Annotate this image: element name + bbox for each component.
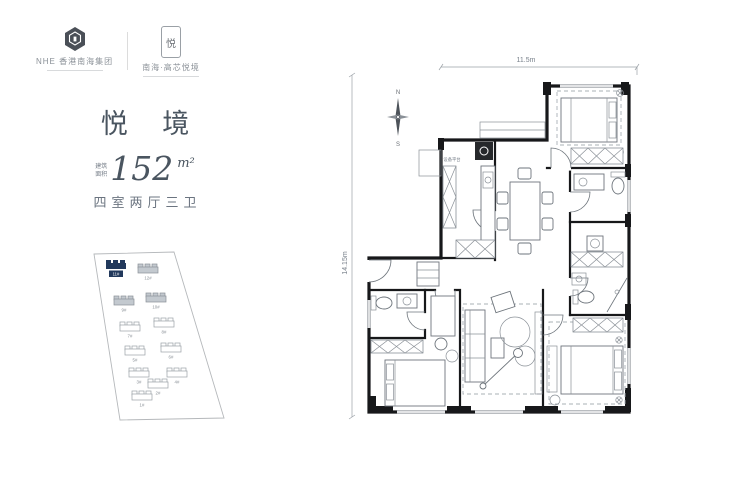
kitchen-lower-cabinet bbox=[456, 240, 495, 258]
washer-icon bbox=[587, 236, 603, 251]
project-logo: 悦 南海·高芯悦境 bbox=[142, 26, 200, 80]
vanity-icon bbox=[574, 174, 604, 190]
window-bottom-left bbox=[397, 409, 445, 414]
shower-door bbox=[607, 278, 627, 312]
area-unit: m² bbox=[177, 156, 195, 183]
area-row: 建筑 面积 152 m² bbox=[80, 155, 210, 183]
sink-icon bbox=[572, 273, 586, 285]
stove-icon bbox=[475, 142, 493, 160]
siteplan-building: 4# bbox=[167, 368, 187, 385]
siteplan-building: 6# bbox=[161, 343, 181, 360]
building-label: 8# bbox=[162, 330, 167, 335]
toilet-icon bbox=[376, 297, 392, 309]
svg-text:S: S bbox=[396, 142, 400, 148]
unit-title: 悦 境 bbox=[80, 102, 210, 141]
window-right-bedroom bbox=[626, 348, 631, 384]
project-tagline-rule bbox=[143, 76, 199, 80]
coffee-table-icon bbox=[491, 338, 504, 358]
sofa-icon bbox=[465, 310, 485, 382]
armchair-icon bbox=[491, 291, 515, 312]
building-label: 1# bbox=[140, 403, 145, 408]
window-bottom-right bbox=[561, 409, 603, 414]
floorplan-page: NHE 香港南海集团 悦 南海·高芯悦境 悦 境 建筑 面积 152 m² 四室… bbox=[0, 0, 740, 484]
siteplan-building: 3# bbox=[129, 368, 149, 385]
window-bottom-living bbox=[475, 409, 523, 414]
developer-tagline-rule bbox=[47, 70, 103, 74]
plant-icon bbox=[446, 350, 458, 362]
building-label: 4# bbox=[175, 380, 180, 385]
window-top bbox=[560, 83, 613, 88]
siteplan-building: 7# bbox=[120, 322, 140, 339]
developer-name: NHE 香港南海集团 bbox=[36, 56, 113, 67]
svg-text:N: N bbox=[396, 90, 400, 96]
compass-icon: N S bbox=[387, 90, 409, 148]
building-label: 6# bbox=[169, 355, 174, 360]
bed-icon bbox=[561, 98, 617, 142]
bedroom-southeast bbox=[547, 318, 625, 405]
ceiling-light-icon bbox=[616, 337, 622, 343]
building-label: 12# bbox=[144, 276, 152, 281]
toilet-icon bbox=[578, 291, 594, 303]
dim-width-label: 11.5m bbox=[517, 57, 536, 64]
ceiling-light-icon bbox=[616, 397, 622, 403]
building-label: 10# bbox=[152, 305, 160, 310]
seal-character: 悦 bbox=[166, 35, 176, 50]
siteplan-building: 9# bbox=[114, 296, 134, 313]
project-name: 南海·高芯悦境 bbox=[142, 62, 200, 73]
chair-icon bbox=[435, 338, 447, 350]
brand-divider bbox=[127, 32, 128, 70]
unit-info: 悦 境 建筑 面积 152 m² 四室两厅三卫 bbox=[80, 102, 210, 211]
rooms-description: 四室两厅三卫 bbox=[80, 192, 210, 211]
kitchen-cabinet-icon bbox=[443, 166, 456, 228]
dim-height-label: 14.15m bbox=[342, 251, 349, 275]
sink-icon bbox=[397, 294, 417, 308]
siteplan-building: 5# bbox=[125, 346, 145, 363]
bathroom-suite bbox=[371, 294, 417, 310]
dining-table-icon bbox=[510, 182, 540, 240]
siteplan-building: 1# bbox=[132, 391, 152, 408]
siteplan: 11#12#9#10#7#8#5#6#3#4#2#1# bbox=[82, 248, 247, 433]
laundry-closet bbox=[571, 236, 623, 267]
equipment-platform bbox=[419, 150, 441, 176]
project-seal-icon: 悦 bbox=[161, 26, 181, 58]
building-label: 5# bbox=[133, 358, 138, 363]
area-label: 建筑 面积 bbox=[95, 164, 107, 183]
building-label: 9# bbox=[122, 308, 127, 313]
siteplan-building: 12# bbox=[138, 264, 158, 281]
brand-header: NHE 香港南海集团 悦 南海·高芯悦境 bbox=[36, 26, 200, 80]
rug-icon bbox=[500, 317, 530, 347]
toilet-icon bbox=[612, 178, 624, 194]
bedroom-north bbox=[557, 90, 623, 164]
siteplan-buildings: 11#12#9#10#7#8#5#6#3#4#2#1# bbox=[106, 260, 187, 408]
bathroom-ensuite bbox=[572, 273, 627, 312]
siteplan-building: 11# bbox=[106, 260, 126, 277]
hexagon-logo-icon bbox=[63, 26, 87, 52]
window-right-bath bbox=[626, 180, 631, 212]
stool-icon bbox=[550, 395, 560, 405]
bathroom-north bbox=[574, 172, 625, 194]
dimension-top: 11.5m bbox=[439, 57, 639, 75]
living-room bbox=[463, 291, 542, 394]
bed-icon bbox=[385, 360, 445, 406]
building-label: 7# bbox=[128, 334, 133, 339]
siteplan-building: 8# bbox=[154, 318, 174, 335]
desk-icon bbox=[547, 346, 557, 392]
building-label: 2# bbox=[156, 391, 161, 396]
bedroom-southwest bbox=[371, 296, 458, 406]
floorplan-drawing: 11.5m 14.15m N S bbox=[330, 45, 650, 435]
developer-logo: NHE 香港南海集团 bbox=[36, 26, 113, 74]
bed-icon bbox=[561, 346, 623, 394]
area-value: 152 bbox=[110, 155, 173, 183]
dimension-left: 14.15m bbox=[342, 73, 355, 419]
building-label: 3# bbox=[137, 380, 142, 385]
siteplan-building: 10# bbox=[146, 293, 166, 310]
floorplan-body: 设备平台 bbox=[366, 82, 631, 415]
building-label: 11# bbox=[113, 272, 120, 277]
equipment-platform-label: 设备平台 bbox=[443, 156, 460, 163]
entry-cabinet bbox=[417, 262, 439, 286]
desk-icon bbox=[431, 296, 455, 336]
dining-area bbox=[497, 168, 553, 254]
